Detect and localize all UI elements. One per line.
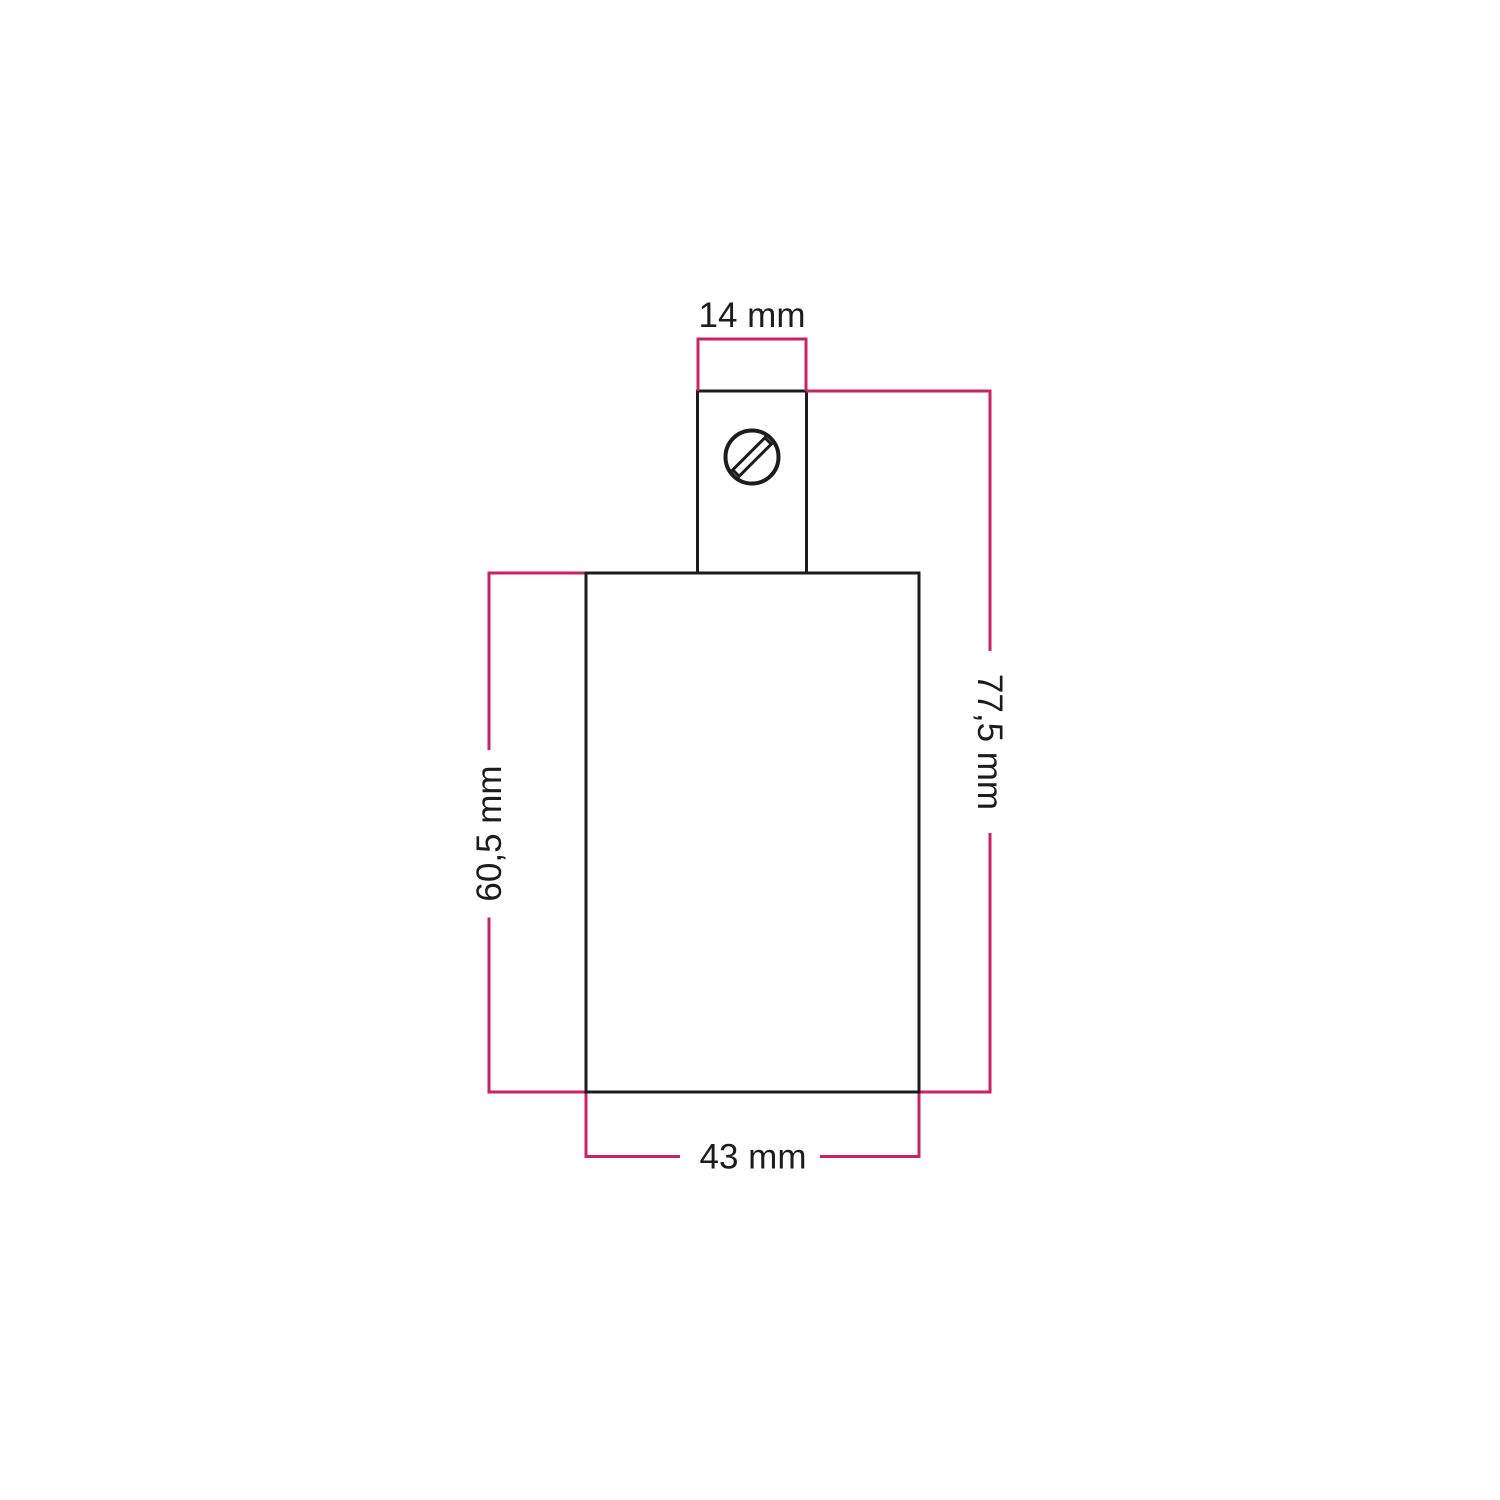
svg-text:14 mm: 14 mm [699, 296, 806, 335]
svg-text:43 mm: 43 mm [700, 1138, 807, 1177]
svg-text:77,5 mm: 77,5 mm [970, 674, 1009, 810]
svg-text:60,5 mm: 60,5 mm [470, 765, 509, 901]
